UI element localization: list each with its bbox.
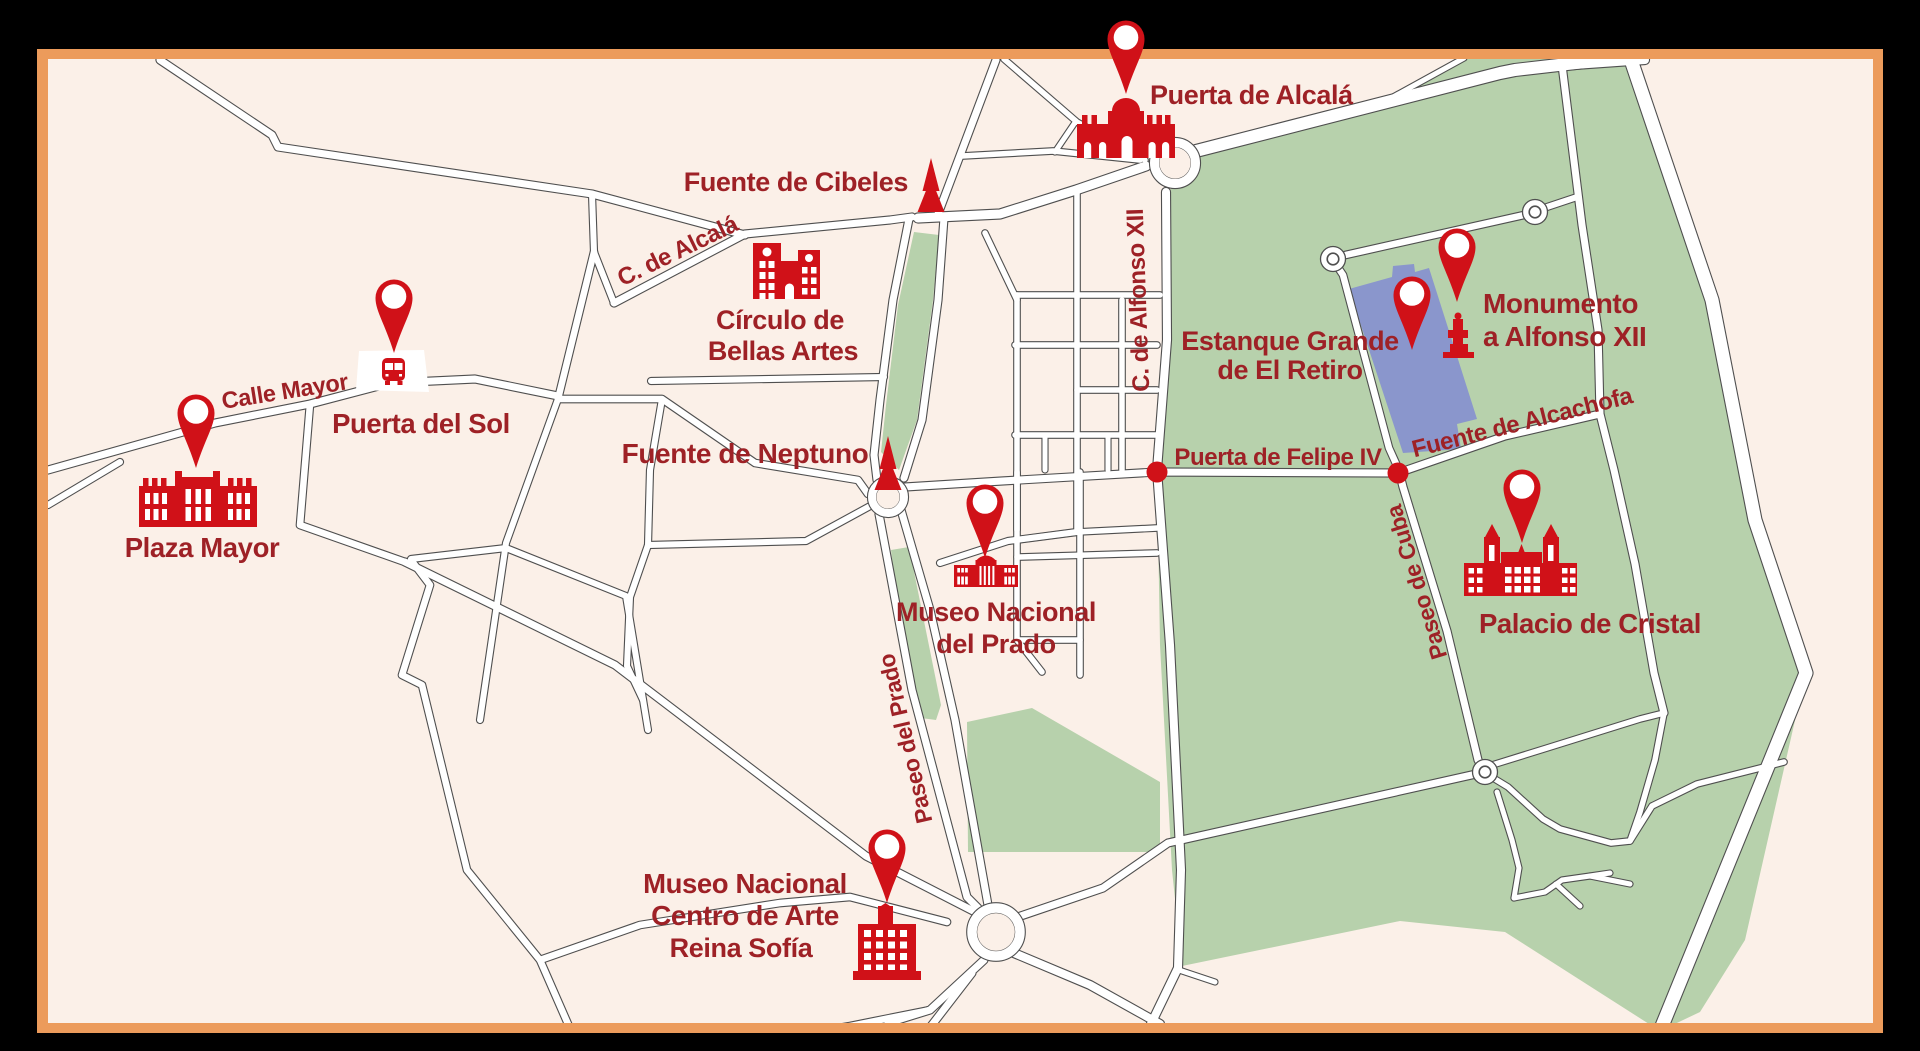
svg-text:de El Retiro: de El Retiro <box>1217 355 1362 385</box>
svg-text:Reina Sofía: Reina Sofía <box>670 933 814 963</box>
svg-text:Museo Nacional: Museo Nacional <box>896 597 1096 627</box>
svg-text:Palacio de Cristal: Palacio de Cristal <box>1479 608 1701 639</box>
svg-text:Centro de Arte: Centro de Arte <box>651 900 839 931</box>
svg-text:Fuente de Cibeles: Fuente de Cibeles <box>684 167 908 197</box>
svg-text:Puerta de Alcalá: Puerta de Alcalá <box>1150 80 1354 110</box>
svg-text:Puerta de Felipe IV: Puerta de Felipe IV <box>1174 444 1382 471</box>
svg-text:Círculo de: Círculo de <box>716 305 844 335</box>
svg-text:Estanque Grande: Estanque Grande <box>1181 326 1399 356</box>
svg-text:Plaza Mayor: Plaza Mayor <box>125 532 280 563</box>
svg-text:del Prado: del Prado <box>936 629 1055 659</box>
svg-text:Museo Nacional: Museo Nacional <box>643 868 847 899</box>
svg-text:a Alfonso XII: a Alfonso XII <box>1483 321 1646 352</box>
svg-text:Puerta del Sol: Puerta del Sol <box>332 408 510 439</box>
svg-text:Monumento: Monumento <box>1483 288 1638 319</box>
svg-text:Fuente de Neptuno: Fuente de Neptuno <box>622 438 869 469</box>
svg-text:Bellas Artes: Bellas Artes <box>708 336 858 366</box>
